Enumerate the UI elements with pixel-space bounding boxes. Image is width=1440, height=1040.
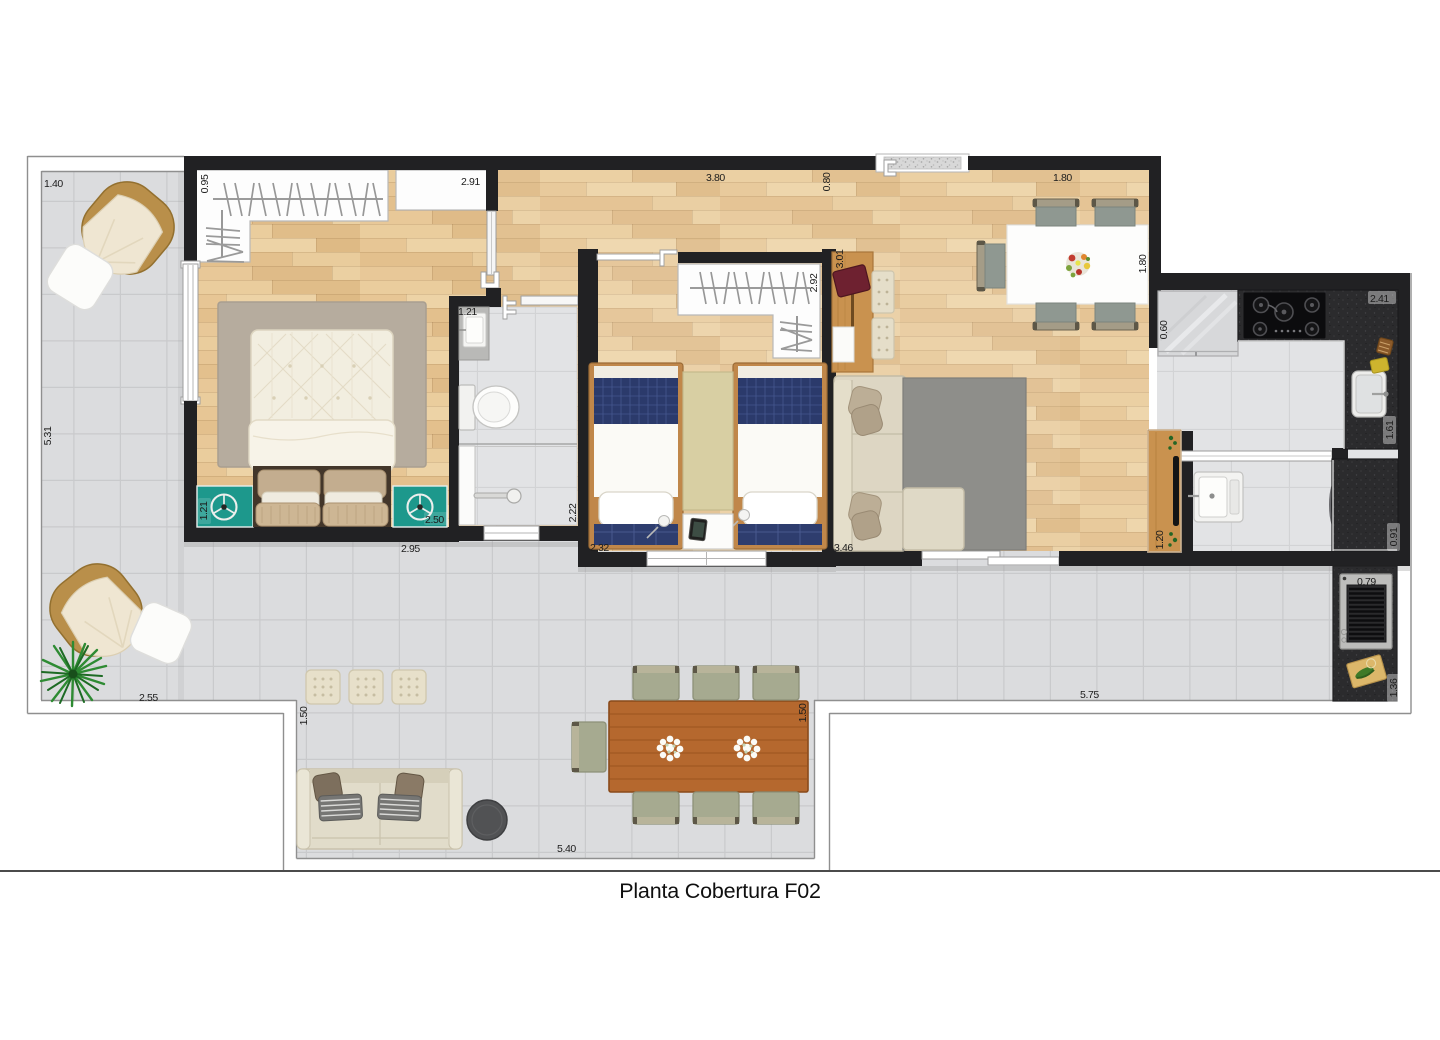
svg-text:0.91: 0.91 bbox=[1388, 527, 1400, 546]
svg-text:2.50: 2.50 bbox=[425, 514, 444, 526]
svg-text:1.21: 1.21 bbox=[198, 501, 210, 520]
svg-text:2.55: 2.55 bbox=[139, 692, 158, 704]
svg-text:5.75: 5.75 bbox=[1080, 689, 1099, 701]
svg-text:3.01: 3.01 bbox=[834, 249, 846, 268]
svg-text:2.91: 2.91 bbox=[461, 176, 480, 188]
svg-text:0.60: 0.60 bbox=[1158, 320, 1170, 339]
svg-text:1.50: 1.50 bbox=[298, 706, 310, 725]
svg-text:0.95: 0.95 bbox=[199, 174, 211, 193]
svg-text:1.80: 1.80 bbox=[1137, 254, 1149, 273]
svg-text:1.80: 1.80 bbox=[1053, 172, 1072, 184]
svg-text:1.36: 1.36 bbox=[1388, 678, 1400, 697]
svg-text:3.80: 3.80 bbox=[706, 172, 725, 184]
svg-text:1.20: 1.20 bbox=[1154, 530, 1166, 549]
svg-text:Planta Cobertura F02: Planta Cobertura F02 bbox=[619, 879, 821, 903]
svg-text:2.95: 2.95 bbox=[401, 543, 420, 555]
svg-text:2.22: 2.22 bbox=[567, 503, 579, 522]
svg-text:5.31: 5.31 bbox=[42, 426, 54, 445]
svg-text:1.61: 1.61 bbox=[1384, 420, 1396, 439]
svg-text:1.21: 1.21 bbox=[458, 306, 477, 318]
svg-text:5.40: 5.40 bbox=[557, 843, 576, 855]
svg-text:0.80: 0.80 bbox=[821, 172, 833, 191]
svg-text:2.92: 2.92 bbox=[808, 273, 820, 292]
svg-text:2.41: 2.41 bbox=[1370, 293, 1389, 305]
svg-text:2.32: 2.32 bbox=[590, 542, 609, 554]
svg-text:1.40: 1.40 bbox=[44, 178, 63, 190]
svg-text:3.46: 3.46 bbox=[834, 542, 853, 554]
svg-text:1.50: 1.50 bbox=[797, 703, 809, 722]
svg-text:0.79: 0.79 bbox=[1357, 576, 1376, 588]
